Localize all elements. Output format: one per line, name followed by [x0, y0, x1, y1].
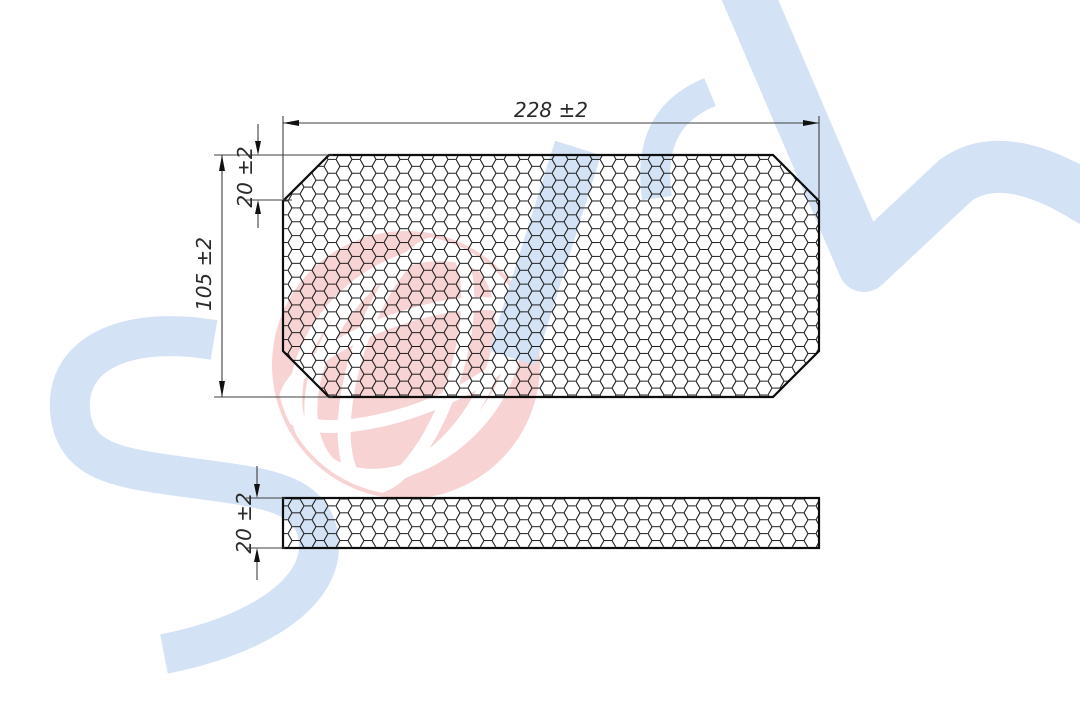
- side-view: [283, 498, 819, 548]
- dim-height-label: 105 ±2: [192, 237, 216, 311]
- technical-drawing-canvas: 228 ±2 105 ±2 20 ±2 20 ±2: [0, 0, 1080, 720]
- arrowhead-width-left: [283, 120, 299, 126]
- technical-drawing-page: 228 ±2 105 ±2 20 ±2 20 ±2: [0, 0, 1080, 720]
- dim-thickness-label: 20 ±2: [232, 492, 256, 553]
- arrowhead-height-bottom: [219, 381, 225, 397]
- dim-chamfer-label: 20 ±2: [233, 146, 257, 207]
- side-view-mesh: [283, 498, 819, 548]
- top-view-mesh: [283, 155, 819, 397]
- arrowhead-height-top: [219, 155, 225, 171]
- dim-width-label: 228 ±2: [514, 98, 588, 122]
- top-view: [283, 155, 819, 397]
